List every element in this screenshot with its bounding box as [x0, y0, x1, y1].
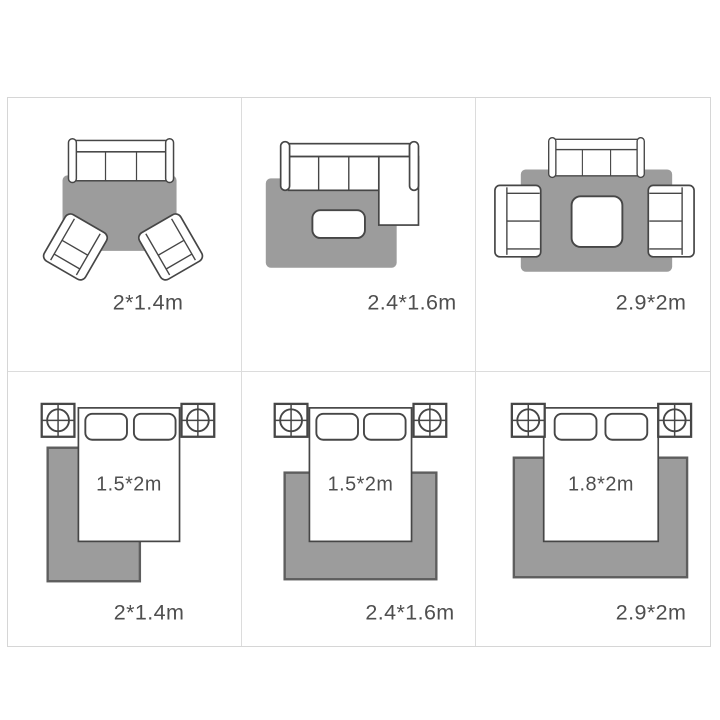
loveseat-icon: [495, 185, 541, 256]
panel-bedroom-large: 1.8*2m 2.9*2m: [476, 372, 710, 646]
nightstand-icon: [512, 404, 545, 437]
bed-icon: 1.5*2m: [78, 408, 179, 542]
bed-size-label: 1.8*2m: [568, 474, 634, 496]
panel-living-room-large: 2.9*2m: [476, 98, 710, 372]
rug-size-label: 2.4*1.6m: [365, 601, 454, 626]
rug-size-label: 2.9*2m: [616, 291, 687, 316]
nightstand-icon: [658, 404, 691, 437]
sofa-icon: [549, 138, 645, 178]
pillow-icon: [555, 414, 597, 440]
coffee-table-icon: [312, 210, 365, 238]
nightstand-icon: [275, 404, 308, 437]
rug-size-label: 2.4*1.6m: [367, 291, 456, 316]
bed-size-label: 1.5*2m: [328, 474, 394, 496]
loveseat-icon: [648, 185, 694, 256]
living-room-small-scene: [8, 98, 241, 371]
panel-living-room-small: 2*1.4m: [8, 98, 242, 372]
pillow-icon: [316, 414, 358, 440]
rug-size-label: 2*1.4m: [114, 601, 185, 626]
nightstand-icon: [42, 404, 75, 437]
pillow-icon: [85, 414, 127, 440]
nightstand-icon: [182, 404, 215, 437]
rug-size-label: 2.9*2m: [616, 601, 687, 626]
pillow-icon: [364, 414, 406, 440]
living-room-medium-scene: [242, 98, 475, 371]
pillow-icon: [605, 414, 647, 440]
living-room-large-scene: [476, 98, 710, 371]
pillow-icon: [134, 414, 176, 440]
size-guide-frame: 2*1.4m 2.4*1.6m: [7, 97, 711, 647]
panel-bedroom-small: 1.5*2m 2*1.4m: [8, 372, 242, 646]
bed-size-label: 1.5*2m: [96, 474, 162, 496]
coffee-table-icon: [572, 196, 623, 247]
panel-bedroom-medium: 1.5*2m 2.4*1.6m: [242, 372, 476, 646]
nightstand-icon: [414, 404, 447, 437]
bed-icon: 1.5*2m: [309, 408, 411, 542]
sofa-icon: [68, 139, 173, 183]
rug-size-label: 2*1.4m: [113, 291, 184, 316]
bed-icon: 1.8*2m: [544, 408, 659, 542]
panel-living-room-medium: 2.4*1.6m: [242, 98, 476, 372]
